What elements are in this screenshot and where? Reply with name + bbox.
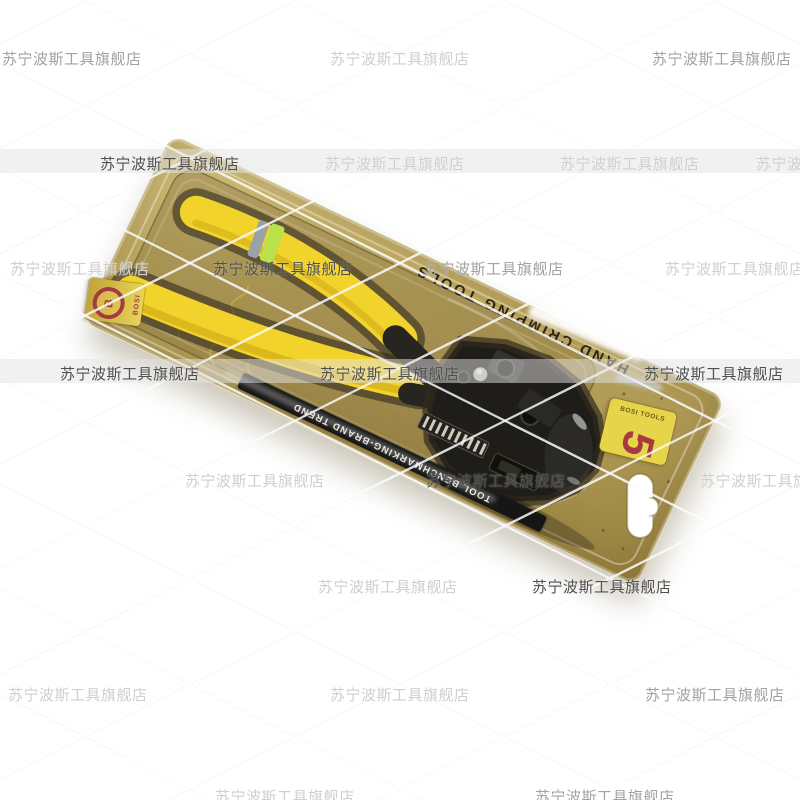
sticker-emblem-ring: B	[91, 285, 127, 321]
watermark-text: 苏宁波斯工具旗舰店	[645, 684, 785, 705]
watermark-text: 苏宁波斯工具旗舰店	[2, 48, 142, 69]
watermark-text: 苏宁波斯工具旗舰店	[185, 470, 325, 491]
hang-hole	[627, 474, 658, 538]
watermark-text: 苏宁波斯工具旗舰店	[535, 786, 675, 800]
watermark-text: 苏宁波斯工具旗舰店	[60, 363, 200, 384]
watermark-text: 苏宁波斯工具旗舰店	[8, 684, 148, 705]
bosi-sticker-left: BOSI B	[84, 277, 145, 326]
watermark-text: 苏宁波斯工具旗舰店	[100, 153, 240, 174]
watermark-text: 苏宁波斯工具旗舰店	[318, 576, 458, 597]
watermark-text: 苏宁波斯工具旗舰店	[644, 363, 784, 384]
watermark-text: 苏宁波斯工具旗舰店	[665, 258, 800, 279]
watermark-text: 苏宁波斯工具旗舰店	[330, 684, 470, 705]
watermark-text: 苏宁波斯工具旗舰店	[424, 258, 564, 279]
watermark-text: 苏宁波斯工具旗舰店	[10, 258, 150, 279]
product-photo-stage: HAND CRIMPING TOOLS TOOL BENCHMARKING-BR…	[0, 0, 800, 800]
watermark-text: 苏宁波斯工具旗舰店	[215, 786, 355, 800]
watermark-text: 苏宁波斯工具旗舰店	[330, 48, 470, 69]
watermark-text: 苏宁波斯工具旗舰店	[652, 48, 792, 69]
watermark-text: 苏宁波斯工具旗舰店	[320, 363, 460, 384]
sticker-emblem-letter: B	[101, 298, 116, 308]
watermark-text: 苏宁波斯工具旗舰店	[560, 153, 700, 174]
watermark-text: 苏宁波斯工具旗舰店	[325, 153, 465, 174]
watermark-text: 苏宁波斯工具旗舰店	[426, 470, 566, 491]
watermark-text: 苏宁波斯工具旗舰店	[756, 153, 800, 174]
watermark-text: 苏宁波斯工具旗舰店	[213, 258, 353, 279]
watermark-text: 苏宁波斯工具旗舰店	[700, 470, 800, 491]
watermark-text: 苏宁波斯工具旗舰店	[532, 576, 672, 597]
